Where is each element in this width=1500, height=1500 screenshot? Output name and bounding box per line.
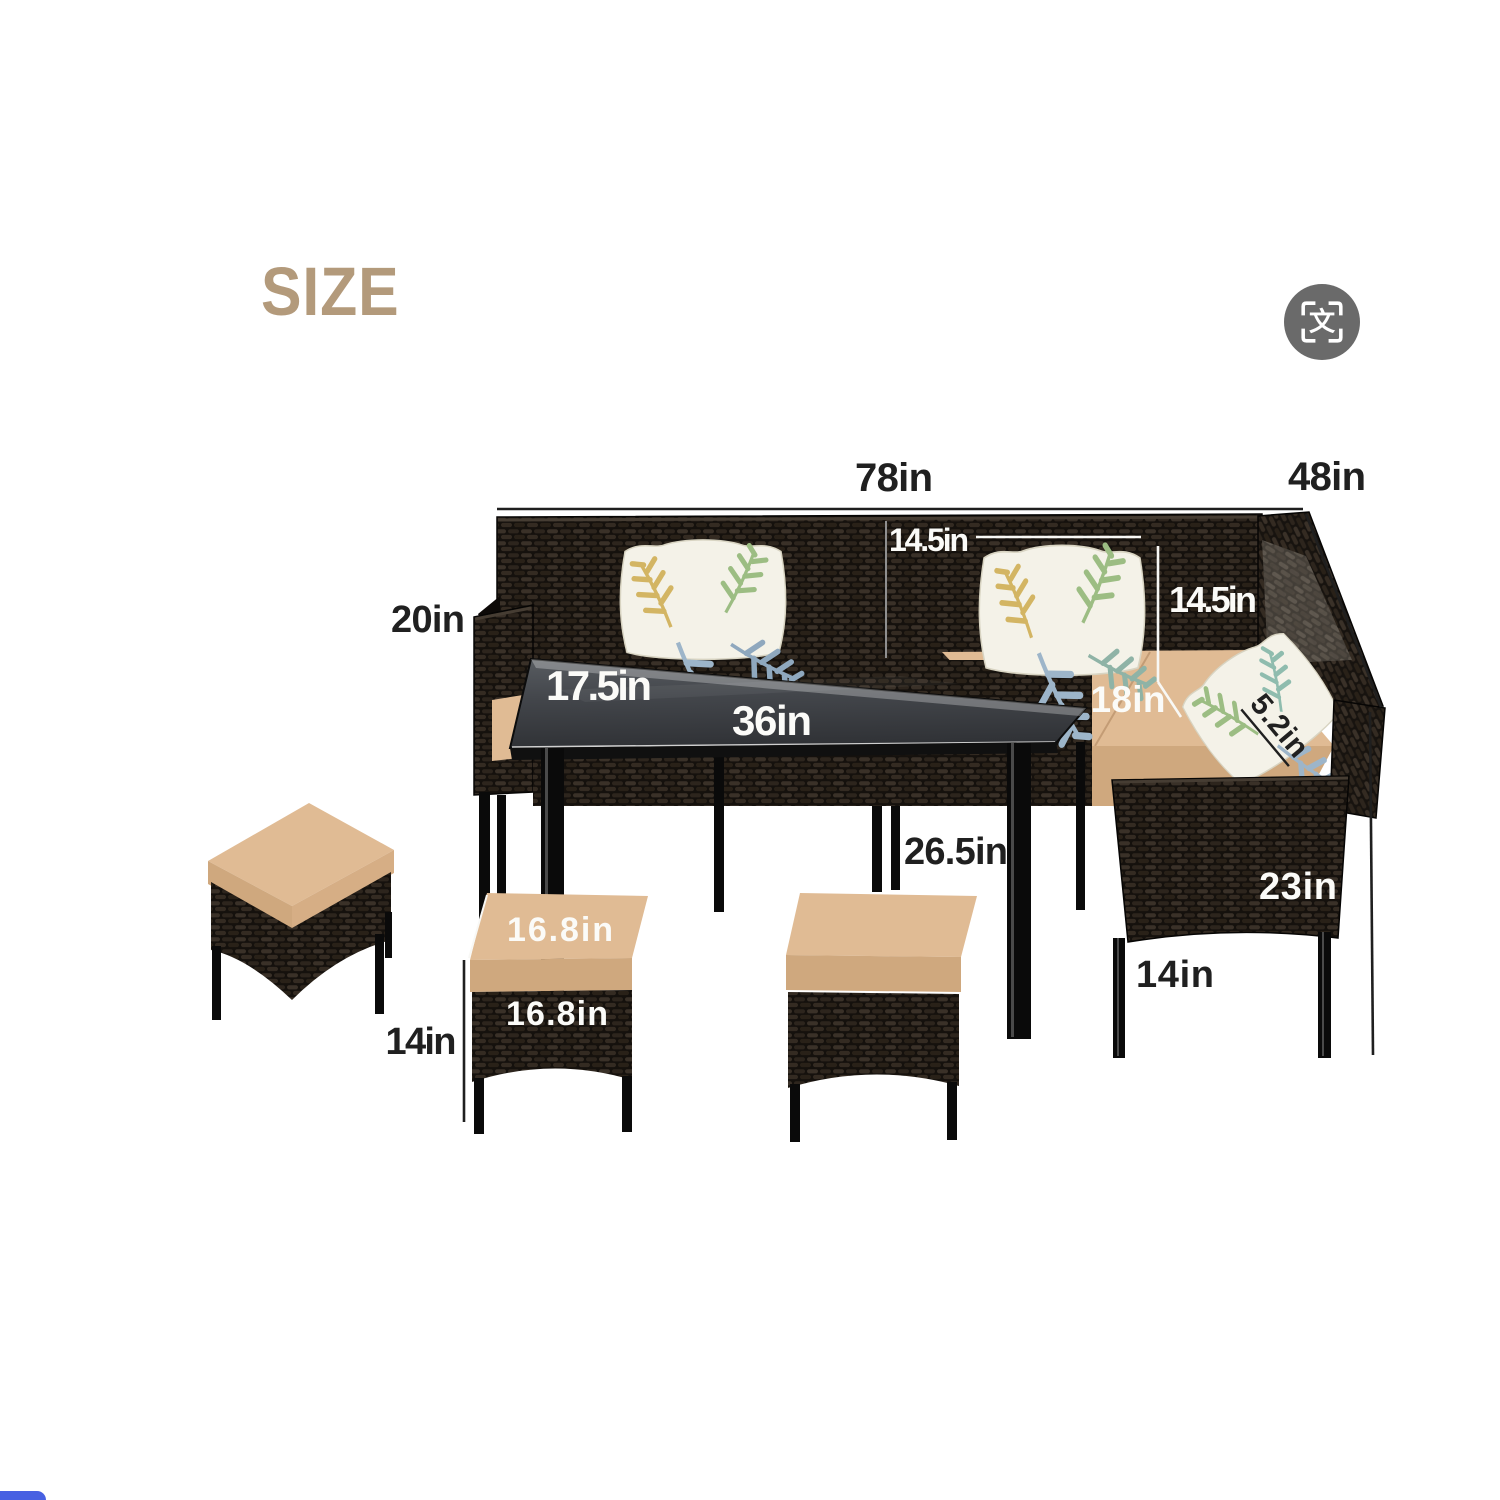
furniture-size-diagram: 78in 48in 20in 14.5in 14.5in 17.5in 36in…: [0, 0, 1500, 1500]
dim-table-length-label: 36in: [732, 697, 812, 744]
dim-backrest-height-label: 14.5in: [1169, 579, 1257, 620]
dim-ottoman-top-width-label: 16.8in: [507, 911, 613, 949]
chair-front-panel: [1112, 776, 1349, 942]
sofa-back-panel: [497, 514, 1262, 662]
dim-table-height-label: 26.5in: [904, 831, 1008, 873]
ottoman-right: [786, 893, 977, 1142]
dim-sofa-width-label: 78in: [855, 456, 933, 500]
dim-ottoman-height-label: 14in: [386, 1021, 457, 1063]
dim-chair-leg-height-label: 14in: [1136, 954, 1214, 996]
dim-pillow-width-label: 14.5in: [889, 522, 969, 558]
dim-sofa-depth-label: 48in: [1288, 455, 1366, 499]
size-diagram-page: SIZE 文: [0, 0, 1500, 1500]
dim-chair-height-label: 23in: [1259, 866, 1337, 908]
dim-seat-depth-label: 18in: [1091, 679, 1166, 720]
corner-peek-button[interactable]: [0, 1491, 46, 1500]
dim-ottoman-front-width-label: 16.8in: [506, 995, 608, 1033]
dim-table-depth-label: 17.5in: [546, 662, 652, 709]
dim-arm-height-label: 20in: [391, 599, 465, 641]
ottoman-left: [208, 803, 394, 1020]
